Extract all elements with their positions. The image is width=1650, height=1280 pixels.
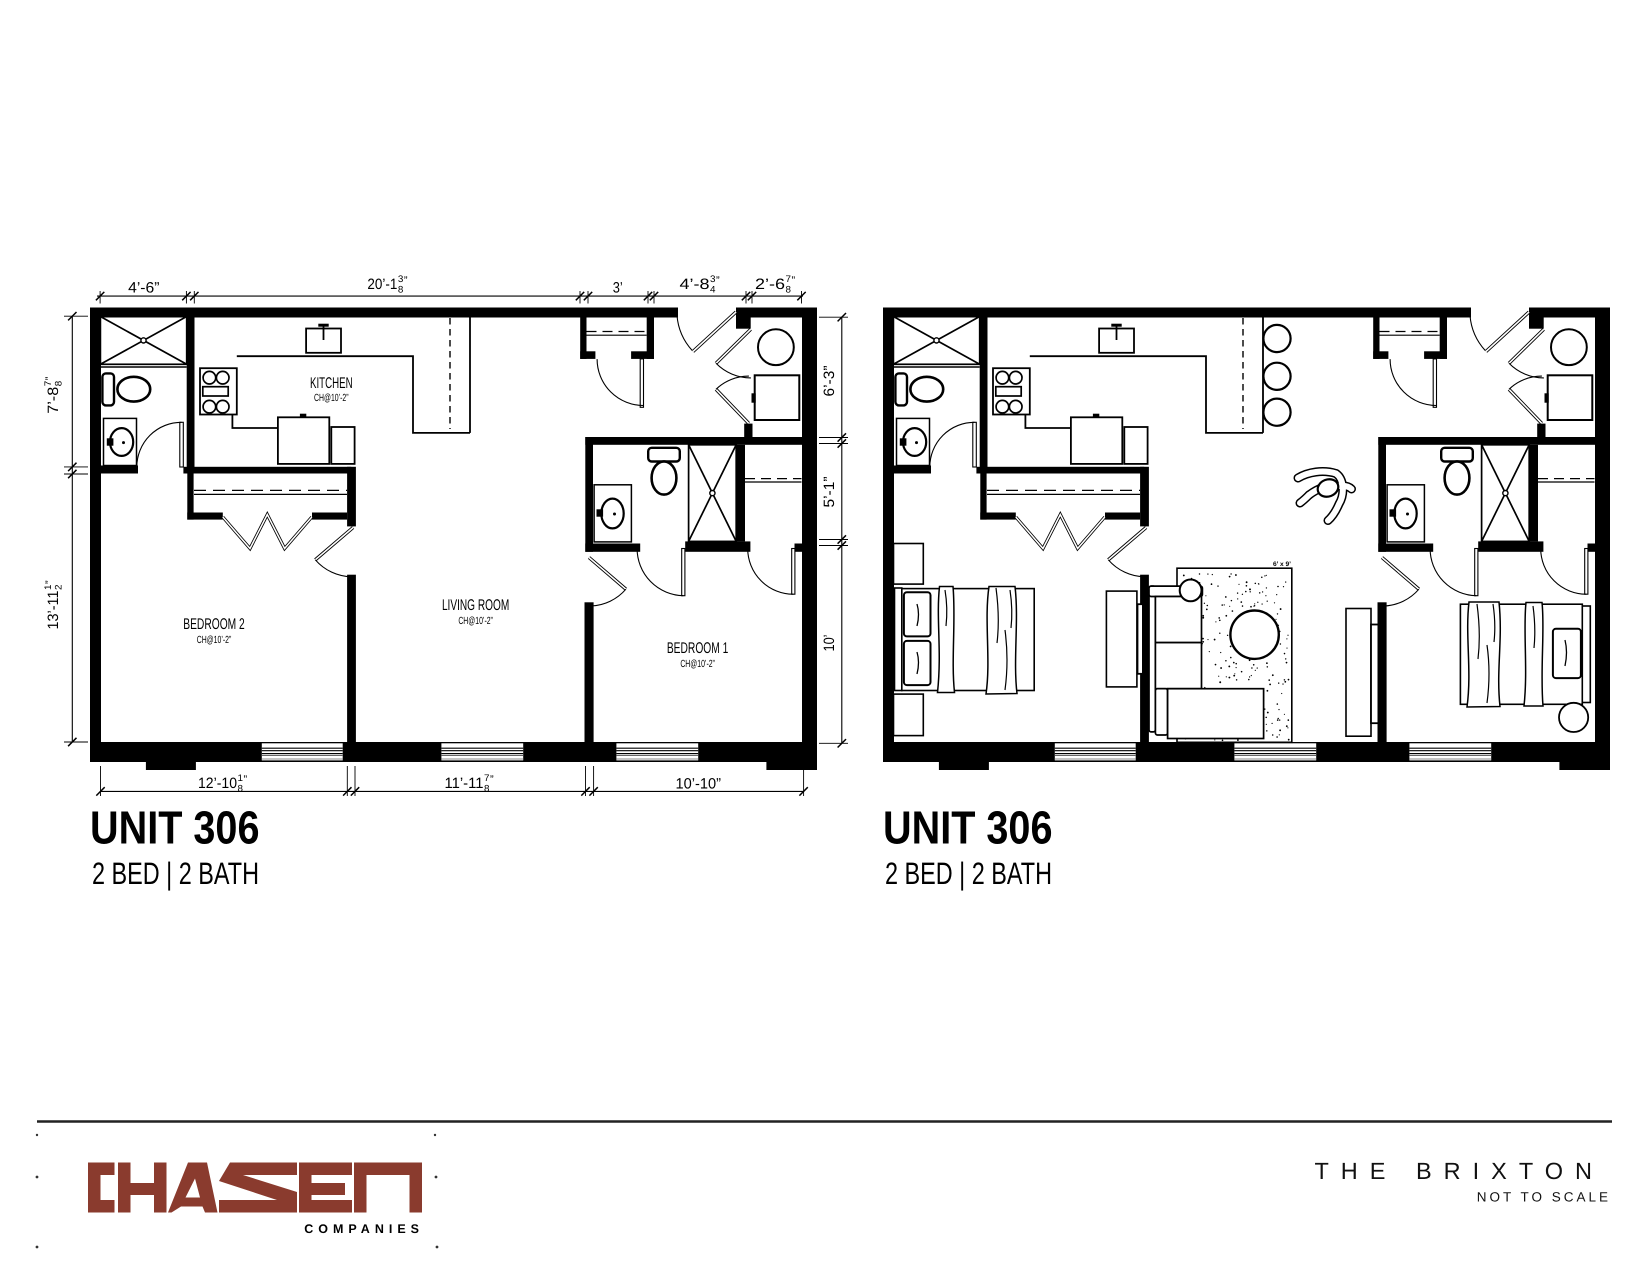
svg-text:8: 8	[484, 784, 490, 795]
svg-text:THE BRIXTON: THE BRIXTON	[1314, 1158, 1604, 1184]
svg-text:10’: 10’	[821, 635, 838, 652]
svg-text:2’-6: 2’-6	[755, 276, 785, 293]
svg-text:1: 1	[238, 773, 244, 784]
svg-text:”: ”	[716, 275, 720, 287]
svg-text:20’-1: 20’-1	[367, 276, 397, 293]
svg-text:KITCHEN: KITCHEN	[310, 375, 353, 392]
svg-text:CH@10’-2”: CH@10’-2”	[680, 659, 715, 670]
svg-text:10’-10”: 10’-10”	[676, 776, 722, 793]
svg-text:”: ”	[792, 275, 796, 287]
svg-text:CH@10’-2”: CH@10’-2”	[197, 635, 232, 646]
svg-text:6’-3”: 6’-3”	[821, 366, 838, 397]
svg-text:8: 8	[786, 285, 792, 296]
svg-text:7: 7	[786, 274, 792, 285]
svg-text:5’-1”: 5’-1”	[821, 477, 838, 508]
svg-text:3’: 3’	[613, 280, 623, 297]
svg-text:2 BED | 2 BATH: 2 BED | 2 BATH	[92, 856, 259, 891]
svg-text:”: ”	[44, 580, 56, 584]
svg-text:7: 7	[484, 773, 490, 784]
svg-text:BEDROOM 1: BEDROOM 1	[667, 640, 729, 657]
svg-text:7: 7	[43, 381, 54, 387]
svg-text:”: ”	[244, 774, 248, 786]
svg-text:NOT TO SCALE: NOT TO SCALE	[1477, 1190, 1611, 1205]
svg-text:2 BED | 2 BATH: 2 BED | 2 BATH	[885, 856, 1052, 891]
svg-text:UNIT 306: UNIT 306	[90, 802, 260, 854]
svg-text:4: 4	[710, 285, 716, 296]
svg-text:12’-10: 12’-10	[198, 775, 237, 792]
svg-text:”: ”	[404, 275, 408, 287]
svg-text:2: 2	[54, 585, 65, 591]
svg-text:1: 1	[43, 585, 54, 591]
svg-text:”: ”	[44, 376, 56, 380]
svg-text:3: 3	[710, 274, 716, 285]
svg-text:8: 8	[398, 285, 404, 296]
svg-text:13’-11: 13’-11	[45, 591, 62, 630]
svg-text:11’-11: 11’-11	[445, 775, 484, 792]
svg-text:7’-8: 7’-8	[45, 387, 62, 414]
svg-text:CH@10’-2”: CH@10’-2”	[458, 616, 493, 627]
svg-text:LIVING ROOM: LIVING ROOM	[442, 597, 509, 614]
svg-text:COMPANIES: COMPANIES	[304, 1222, 424, 1236]
svg-text:BEDROOM 2: BEDROOM 2	[183, 616, 245, 633]
svg-text:3: 3	[398, 274, 404, 285]
svg-text:”: ”	[490, 774, 494, 786]
svg-text:8: 8	[238, 784, 244, 795]
svg-text:8: 8	[54, 381, 65, 387]
svg-text:4’-8: 4’-8	[680, 276, 710, 293]
svg-text:CH@10’-2”: CH@10’-2”	[314, 393, 349, 404]
svg-text:UNIT 306: UNIT 306	[883, 802, 1053, 854]
svg-text:4’-6”: 4’-6”	[128, 280, 159, 297]
svg-text:6’ x 9’: 6’ x 9’	[1273, 561, 1291, 568]
